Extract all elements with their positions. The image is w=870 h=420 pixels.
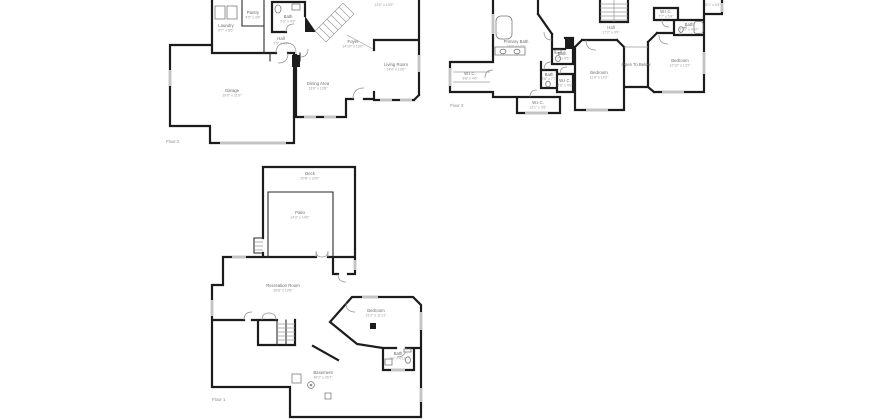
floor1-door-arcs <box>244 251 406 357</box>
sink-icon <box>514 49 520 54</box>
floor2-stairs <box>315 3 373 49</box>
floor2-pantry-dims: 4'5" x 3'8" <box>245 16 261 20</box>
floor1-label: Floor 1 <box>212 397 226 402</box>
floor3-wic-bottom-dims: 12'1" x 3'6" <box>529 106 547 110</box>
floor3-bedroom-right-dims: 12'10" x 13'2" <box>669 64 691 68</box>
floor3-bath-right-dims: 7'10" x 4'10" <box>679 28 699 32</box>
floor2-laundry-dims: 6'7" x 5'6" <box>218 29 234 33</box>
floor3-wic-left-name: W.I.C. <box>464 71 476 76</box>
floor3-hall-dims: 17'2" x 9'9" <box>602 31 620 35</box>
floor2-pantry-name: Pantry <box>247 10 260 15</box>
floor3-bedroom-center-name: Bedroom <box>590 70 608 75</box>
floor1-fireplace-fill <box>370 323 376 329</box>
floor3-geometry <box>450 0 722 113</box>
floor2-foyer-dims: 14'10" x 13'0" <box>342 45 364 49</box>
floor3-bedroom-center-dims: 11'9" x 14'2" <box>590 76 610 80</box>
floor3-primary-bath-name: Primary Bath <box>504 39 529 44</box>
floor3-bath-right-name: Bath <box>685 22 694 27</box>
floor3-cutoff-dims: 5'1" x 9'4" <box>705 3 721 7</box>
floor1-plan: Deck 20'8" x 20'0" Patio 14'2" x 14'6" R… <box>200 160 430 420</box>
floor2-dining-dims: 13'6" x 13'8" <box>308 87 328 91</box>
floor1-recreation-name: Recreation Room <box>266 283 300 288</box>
floor3-wic-bottom-name: W.I.C. <box>532 100 544 105</box>
floor3-wic-small-name: W.I.C. <box>559 78 571 83</box>
floor3-primary-bath-dims: 13'9" x 14'1" <box>506 45 526 49</box>
floor1-geometry <box>212 167 421 417</box>
bathtub-icon <box>496 16 512 39</box>
floor3-wic-left-dims: 9'8" x 4'6" <box>462 77 478 81</box>
floor2-laundry-name: Laundry <box>218 23 234 28</box>
floor3-wic-small-dims: 4'6" x 4'9" <box>557 84 573 88</box>
floor1-patio-name: Patio <box>295 210 305 215</box>
floor3-bedroom-right-name: Bedroom <box>671 58 689 63</box>
floor2-dining-name: Dining Area <box>307 81 330 86</box>
sink-icon <box>500 49 506 54</box>
floor1-recreation-dims: 30'8" x 19'8" <box>273 289 293 293</box>
floor2-hall-dims: 7'5" x 4'9" <box>273 42 289 46</box>
floor1-exterior-walls <box>212 167 421 417</box>
toilet-icon <box>546 81 551 87</box>
floor1-labels: Deck 20'8" x 20'0" Patio 14'2" x 14'6" R… <box>212 171 407 402</box>
floor1-deck-name: Deck <box>305 171 316 176</box>
floor1-basement-dims: 48'2" x 26'7" <box>313 376 333 380</box>
floor3-wic-right-name: W.I.C. <box>660 9 672 14</box>
floor3-chimney-fill <box>565 38 573 49</box>
floorplan-canvas: Laundry 6'7" x 5'6" Pantry 4'5" x 3'8" B… <box>0 0 870 420</box>
floor1-bedroom-dims: 21'2" x 11'11" <box>366 314 387 318</box>
floor2-plan: Laundry 6'7" x 5'6" Pantry 4'5" x 3'8" B… <box>150 0 440 155</box>
floor1-windows <box>212 257 421 402</box>
floor3-hall-name: Hall <box>607 25 614 30</box>
floor2-bath-dims: 5'3" x 4'9" <box>280 20 296 24</box>
floor1-patio-dims: 14'2" x 14'6" <box>290 216 310 220</box>
floor2-hall-name: Hall <box>277 36 284 41</box>
floor2-chimney-fill <box>292 16 316 67</box>
floor3-bath-center-name: Bath <box>558 51 567 56</box>
floor1-basement-name: Basement <box>313 370 333 375</box>
floor2-garage-dims: 29'0" x 21'9" <box>222 94 242 98</box>
floor3-door-arcs <box>485 20 687 97</box>
floor2-label: Floor 2 <box>166 139 180 144</box>
floor2-foyer-name: Foyer <box>348 39 360 44</box>
utility-icon <box>310 384 312 386</box>
floor3-wic-right-dims: 7'7" x 5'4" <box>658 15 674 19</box>
floor1-bedroom-name: Bedroom <box>367 308 385 313</box>
floor3-bath-center-dims: 7'7" x 4'5" <box>554 57 570 61</box>
floor2-living-name: Living Room <box>384 62 408 67</box>
floor2-cutoff-dims: 13'0" x 13'9" <box>374 3 394 7</box>
floor1-deck-dims: 20'8" x 20'0" <box>300 177 320 181</box>
floor1-bath-name: Bath <box>394 351 403 356</box>
floor3-exterior-walls <box>450 0 722 113</box>
floor2-living-dims: 14'9" x 13'0" <box>386 68 406 72</box>
floor2-garage-name: Garage <box>225 88 240 93</box>
floor1-bath-dims: 9'6" x 4'11" <box>390 357 408 361</box>
floor3-plan: Primary Bath 13'9" x 14'1" W.I.C. 9'8" x… <box>440 0 740 125</box>
floor3-bath-small-dims: 3'6" x 7'7" <box>541 77 557 81</box>
floor2-labels: Laundry 6'7" x 5'6" Pantry 4'5" x 3'8" B… <box>166 3 408 144</box>
floor2-bath-name: Bath <box>284 14 293 19</box>
toilet-icon <box>275 5 281 13</box>
floor3-open-to-below-label: Open To Below <box>621 62 651 67</box>
floor3-label: Floor 3 <box>450 103 464 108</box>
